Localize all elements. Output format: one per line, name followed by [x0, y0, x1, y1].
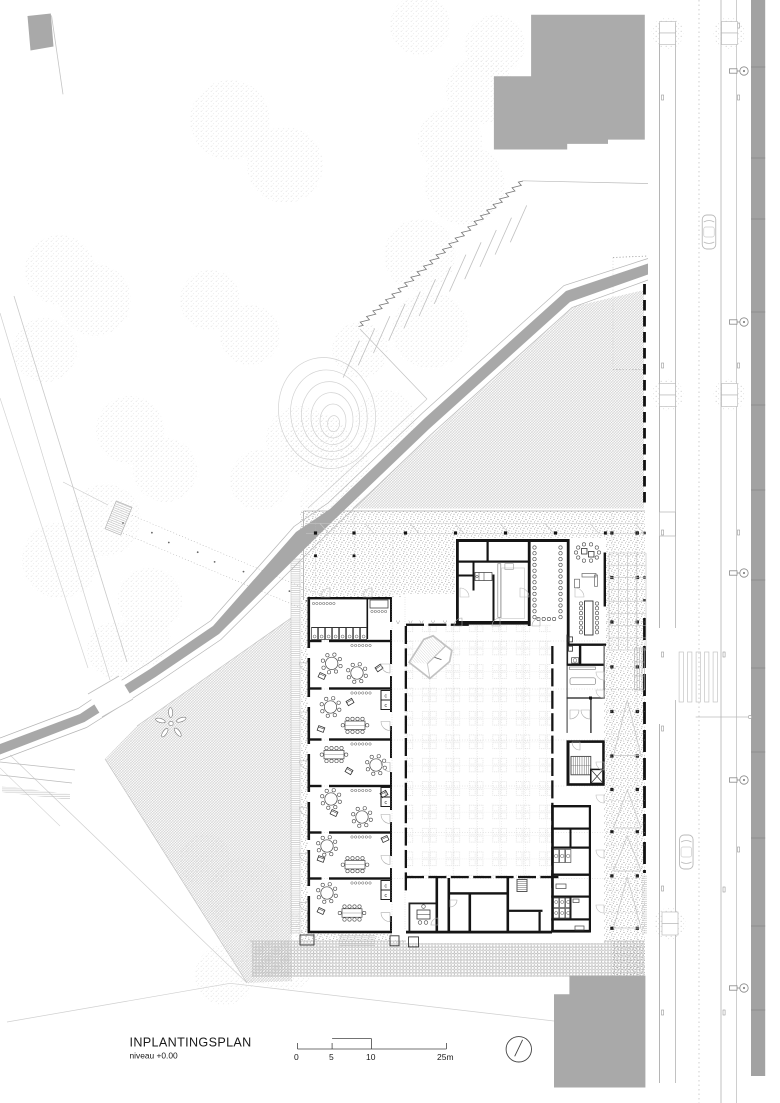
svg-text:niveau +0.00: niveau +0.00	[130, 1051, 179, 1061]
svg-text:INPLANTINGSPLAN: INPLANTINGSPLAN	[130, 1036, 252, 1050]
svg-text:0: 0	[294, 1052, 299, 1062]
svg-text:5: 5	[329, 1052, 334, 1062]
svg-text:25m: 25m	[437, 1052, 454, 1062]
svg-text:10: 10	[366, 1052, 376, 1062]
